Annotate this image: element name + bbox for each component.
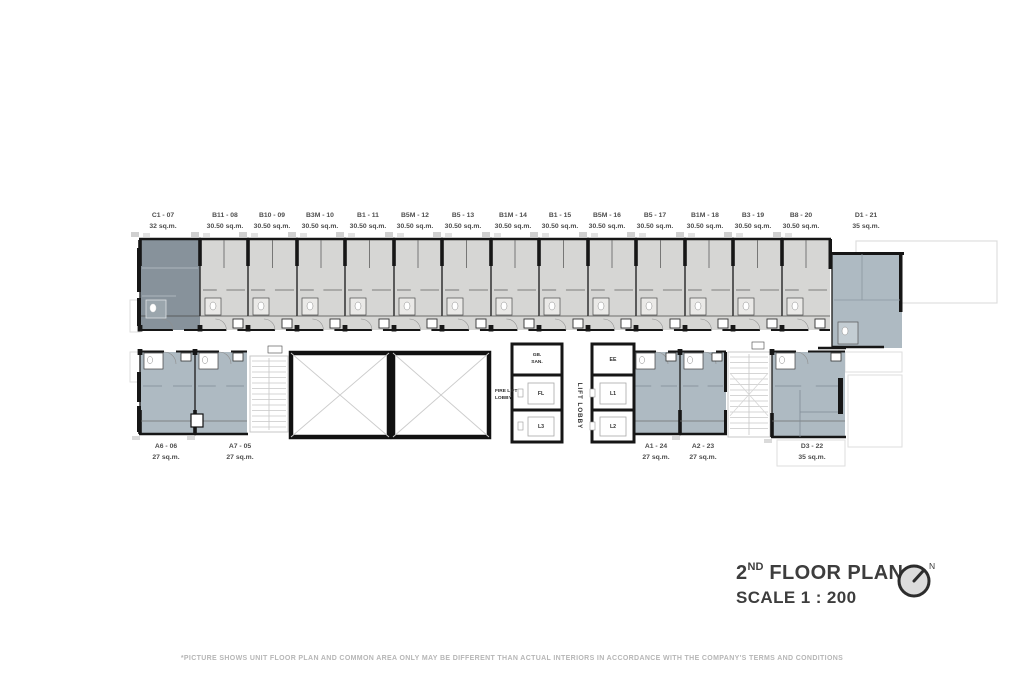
- unit-D3-22: D3 - 2235 sq.m.: [764, 348, 846, 461]
- wall: [829, 239, 833, 269]
- toilet-fixture: [150, 304, 156, 312]
- ledge: [300, 233, 307, 237]
- unit-B11-08: B11 - 0830.50 sq.m.: [191, 212, 249, 332]
- ledge: [251, 233, 258, 237]
- planter: [712, 353, 722, 361]
- toilet-fixture: [452, 302, 458, 310]
- unit-id: B11 - 08: [212, 212, 238, 219]
- unit-id: A1 - 24: [645, 443, 668, 450]
- unit-B5-17: B5 - 1730.50 sq.m.: [627, 212, 686, 332]
- unit-area: 32 sq.m.: [149, 223, 176, 230]
- staircase-east: [728, 352, 770, 437]
- plan-title: 2ND FLOOR PLAN: [736, 562, 903, 585]
- unit-area: 27 sq.m.: [152, 454, 179, 461]
- void-block-2: [393, 353, 489, 437]
- unit-area: 30.50 sq.m.: [735, 223, 772, 230]
- unit-area: 27 sq.m.: [689, 454, 716, 461]
- planter: [815, 319, 825, 328]
- ledge: [724, 232, 732, 237]
- toilet-fixture: [404, 302, 410, 310]
- unit-id: B5 - 13: [452, 212, 475, 219]
- unit-A2-23: A2 - 2327 sq.m.: [672, 349, 727, 461]
- unit-B1-11: B1 - 1130.50 sq.m.: [336, 212, 395, 332]
- ledge: [187, 436, 195, 440]
- unit-C1-07: C1 - 0732 sq.m.: [131, 212, 201, 332]
- faint-outline: [845, 352, 902, 372]
- unit-A6-06: A6 - 0627 sq.m.: [132, 349, 196, 461]
- planter: [718, 319, 728, 328]
- unit-B5-13: B5 - 1330.50 sq.m.: [433, 212, 492, 332]
- unit-id: B5M - 16: [593, 212, 621, 219]
- unit-id: B3M - 10: [306, 212, 334, 219]
- north-label: N: [929, 561, 935, 571]
- planter: [233, 353, 243, 361]
- gb-san-label: GB.: [533, 352, 542, 358]
- fire-lift-lobby-label: LOBBY: [495, 395, 513, 401]
- unit-B8-20: B8 - 2030.50 sq.m.: [773, 212, 831, 332]
- ledge: [445, 233, 452, 237]
- lift-label: L3: [538, 424, 544, 430]
- plan-title-block: 2ND FLOOR PLAN SCALE 1 : 200: [736, 562, 903, 608]
- wall: [137, 406, 141, 432]
- lift-label: L2: [610, 424, 616, 430]
- fire-lift-lobby-label: FIRE LIFT: [495, 388, 517, 394]
- wall: [537, 240, 541, 266]
- lift-door: [518, 422, 523, 430]
- unit-area: 27 sq.m.: [642, 454, 669, 461]
- wall: [489, 240, 493, 266]
- toilet-fixture: [743, 302, 749, 310]
- wall: [392, 240, 396, 266]
- unit-id: D3 - 22: [801, 443, 824, 450]
- disclaimer-text: *PICTURE SHOWS UNIT FLOOR PLAN AND COMMO…: [0, 655, 1024, 662]
- staircase-west: [250, 356, 288, 432]
- unit-id: A2 - 23: [692, 443, 715, 450]
- wall: [586, 240, 590, 266]
- ledge: [433, 232, 441, 237]
- unit-id: B5 - 17: [644, 212, 667, 219]
- wall: [440, 240, 444, 266]
- wall: [832, 252, 904, 255]
- unit-area: 30.50 sq.m.: [783, 223, 820, 230]
- toilet-fixture: [549, 302, 555, 310]
- ledge: [773, 232, 781, 237]
- planter: [282, 319, 292, 328]
- ledge: [385, 232, 393, 237]
- toilet-fixture: [598, 302, 604, 310]
- floor-plan-page: C1 - 0732 sq.m.B11 - 0830.50 sq.m.B10 - …: [0, 0, 1024, 683]
- unit-B1-15: B1 - 1530.50 sq.m.: [530, 212, 589, 332]
- planter: [767, 319, 777, 328]
- ledge: [530, 232, 538, 237]
- ledge: [239, 232, 247, 237]
- gb-san-label: SAN.: [531, 359, 542, 365]
- bathroom: [776, 353, 795, 369]
- unit-A7-05: A7 - 0527 sq.m.: [187, 349, 254, 461]
- planter: [181, 353, 191, 361]
- toilet-fixture: [210, 302, 216, 310]
- planter: [670, 319, 680, 328]
- planter: [621, 319, 631, 328]
- toilet-fixture: [147, 356, 152, 363]
- planter: [666, 353, 676, 361]
- toilet-fixture: [202, 356, 207, 363]
- fhc-box: [268, 346, 282, 353]
- unit-area: 30.50 sq.m.: [637, 223, 674, 230]
- ledge: [736, 233, 743, 237]
- wall: [731, 240, 735, 266]
- planter: [573, 319, 583, 328]
- toilet-fixture: [792, 302, 798, 310]
- bathroom: [684, 353, 703, 369]
- ledge: [191, 232, 199, 237]
- toilet-fixture: [695, 302, 701, 310]
- ledge: [143, 233, 150, 237]
- toilet-fixture: [842, 327, 848, 335]
- ledge: [494, 233, 501, 237]
- toilet-fixture: [307, 302, 313, 310]
- ledge: [132, 436, 140, 440]
- ledge: [482, 232, 490, 237]
- toilet-fixture: [687, 356, 692, 363]
- ledge: [579, 232, 587, 237]
- plan-scale: SCALE 1 : 200: [736, 588, 903, 608]
- planter: [233, 319, 243, 328]
- ledge: [203, 233, 210, 237]
- ledge: [676, 232, 684, 237]
- unit-id: A7 - 05: [229, 443, 252, 450]
- unit-area: 30.50 sq.m.: [445, 223, 482, 230]
- lift-door: [518, 389, 523, 397]
- planter: [831, 353, 841, 361]
- ledge: [688, 233, 695, 237]
- ledge: [336, 232, 344, 237]
- planter: [524, 319, 534, 328]
- floor-ordinal: ND: [748, 561, 764, 573]
- wall: [343, 240, 347, 266]
- unit-area: 27 sq.m.: [226, 454, 253, 461]
- fhc-box: [752, 342, 764, 349]
- wall: [137, 372, 141, 402]
- toilet-fixture: [501, 302, 507, 310]
- unit-B10-09: B10 - 0930.50 sq.m.: [239, 212, 298, 332]
- unit-area: 35 sq.m.: [852, 223, 879, 230]
- ee-label: EE: [610, 357, 617, 363]
- unit-B1M-14: B1M - 1430.50 sq.m.: [482, 212, 540, 332]
- lift-door: [590, 422, 595, 430]
- unit-id: B8 - 20: [790, 212, 813, 219]
- ledge: [627, 232, 635, 237]
- unit-area: 30.50 sq.m.: [687, 223, 724, 230]
- bathroom: [199, 353, 218, 369]
- wall: [770, 349, 775, 355]
- wall: [899, 254, 903, 312]
- unit-area: 30.50 sq.m.: [254, 223, 291, 230]
- wall: [137, 248, 141, 292]
- bathroom: [144, 353, 163, 369]
- unit-area: 30.50 sq.m.: [350, 223, 387, 230]
- lift-label: FL: [538, 391, 545, 397]
- wall: [724, 352, 727, 392]
- wall: [678, 410, 682, 434]
- wall: [678, 349, 683, 355]
- wall: [683, 240, 687, 266]
- wall: [838, 378, 843, 414]
- unit-B5M-12: B5M - 1230.50 sq.m.: [385, 212, 443, 332]
- unit-id: B3 - 19: [742, 212, 765, 219]
- unit-id: B1 - 15: [549, 212, 572, 219]
- ledge: [542, 233, 549, 237]
- north-compass-icon: N: [896, 557, 940, 603]
- void-block-1: [291, 353, 389, 437]
- unit-id: D1 - 21: [855, 212, 878, 219]
- toilet-fixture: [639, 356, 644, 363]
- faint-outline: [848, 375, 902, 447]
- floor-number: 2: [736, 562, 748, 584]
- ledge: [591, 233, 598, 237]
- unit-D1-21: D1 - 2135 sq.m.: [832, 212, 904, 348]
- ledge: [397, 233, 404, 237]
- unit-area: 30.50 sq.m.: [589, 223, 626, 230]
- wall: [724, 410, 727, 434]
- ledge: [764, 439, 772, 443]
- wall: [137, 298, 141, 326]
- unit-id: B1M - 14: [499, 212, 527, 219]
- bathroom: [636, 353, 655, 369]
- unit-B3-19: B3 - 1930.50 sq.m.: [724, 212, 783, 332]
- wall: [138, 349, 143, 355]
- planter: [476, 319, 486, 328]
- unit-id: C1 - 07: [152, 212, 175, 219]
- planter: [330, 319, 340, 328]
- unit-area: 30.50 sq.m.: [495, 223, 532, 230]
- planter: [379, 319, 389, 328]
- planter: [427, 319, 437, 328]
- toilet-fixture: [258, 302, 264, 310]
- wall: [770, 413, 774, 437]
- wall: [193, 349, 198, 355]
- unit-area: 30.50 sq.m.: [542, 223, 579, 230]
- ledge: [288, 232, 296, 237]
- lift-label: L1: [610, 391, 616, 397]
- unit-B1M-18: B1M - 1830.50 sq.m.: [676, 212, 734, 332]
- plan-title-text: FLOOR PLAN: [769, 562, 903, 584]
- lift-lobby-label: LIFT LOBBY: [576, 383, 583, 429]
- unit-area: 30.50 sq.m.: [207, 223, 244, 230]
- unit-area: 30.50 sq.m.: [397, 223, 434, 230]
- lift-door: [590, 389, 595, 397]
- toilet-fixture: [779, 356, 784, 363]
- unit-id: B5M - 12: [401, 212, 429, 219]
- ledge: [131, 232, 139, 237]
- unit-id: B1M - 18: [691, 212, 719, 219]
- service-shaft: [191, 414, 203, 427]
- toilet-fixture: [646, 302, 652, 310]
- core-area: GB.SAN.EEFIRE LIFTLOBBYFLL3L1L2LIFT LOBB…: [495, 344, 634, 442]
- wall: [246, 240, 250, 266]
- wall: [780, 240, 784, 266]
- toilet-fixture: [355, 302, 361, 310]
- wall: [634, 240, 638, 266]
- wall: [198, 240, 202, 266]
- unit-B5M-16: B5M - 1630.50 sq.m.: [579, 212, 637, 332]
- unit-id: B1 - 11: [357, 212, 379, 219]
- unit-area: 30.50 sq.m.: [302, 223, 339, 230]
- unit-id: B10 - 09: [259, 212, 285, 219]
- unit-B3M-10: B3M - 1030.50 sq.m.: [288, 212, 346, 332]
- unit-id: A6 - 06: [155, 443, 178, 450]
- ledge: [639, 233, 646, 237]
- unit-area: 35 sq.m.: [798, 454, 825, 461]
- ledge: [672, 436, 680, 440]
- wall: [295, 240, 299, 266]
- ledge: [785, 233, 792, 237]
- ledge: [348, 233, 355, 237]
